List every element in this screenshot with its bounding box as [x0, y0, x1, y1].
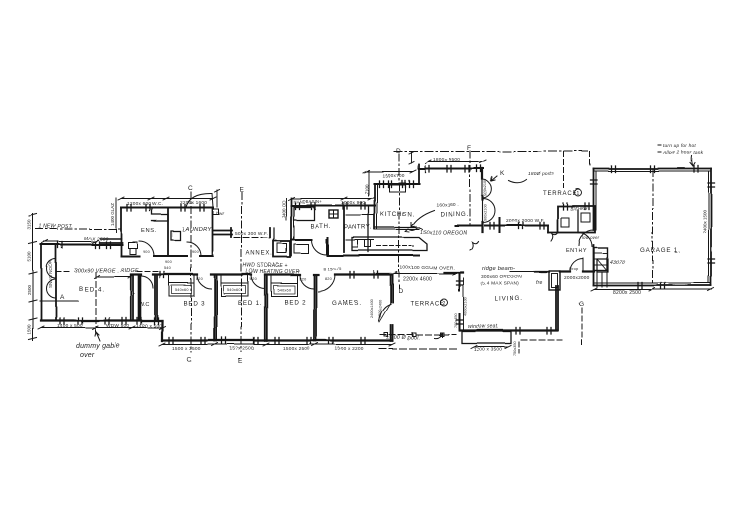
svg-text:540x60: 540x60	[227, 288, 241, 292]
svg-text:D: D	[398, 288, 403, 295]
svg-text:1 NEW POST.: 1 NEW POST.	[39, 224, 73, 230]
svg-text:ridge beam-: ridge beam-	[482, 266, 515, 272]
svg-text:fre: fre	[536, 280, 542, 286]
svg-text:900: 900	[143, 250, 150, 254]
svg-text:(5.4 MAX SPAN): (5.4 MAX SPAN)	[481, 281, 520, 287]
svg-text:LOW HEATING OVER: LOW HEATING OVER	[246, 269, 300, 275]
svg-text:2: 2	[443, 301, 446, 307]
svg-text:1500x 2500: 1500x 2500	[283, 346, 310, 352]
svg-text:2000x2000: 2000x2000	[564, 275, 590, 281]
svg-text:540x60: 540x60	[175, 288, 189, 292]
svg-text:D: D	[396, 148, 401, 155]
svg-text:1500x700: 1500x700	[382, 173, 405, 179]
svg-text:GARAGE 1.: GARAGE 1.	[640, 247, 681, 254]
svg-text:BATHRM: BATHRM	[570, 206, 588, 211]
svg-text:1200 x 3500: 1200 x 3500	[474, 347, 503, 353]
svg-text:1200x 600: 1200x 600	[127, 201, 151, 207]
svg-text:700x450: 700x450	[454, 313, 458, 328]
svg-text:2500: 2500	[27, 284, 32, 295]
svg-text:B 150x75: B 150x75	[323, 266, 342, 271]
svg-text:2100: 2100	[364, 183, 369, 194]
svg-text:4000x2100: 4000x2100	[464, 297, 468, 316]
svg-text:1800x 5500: 1800x 5500	[433, 157, 460, 163]
svg-text:1500: 1500	[27, 324, 32, 335]
svg-text:WDW 500: WDW 500	[106, 323, 129, 329]
svg-text:K: K	[500, 170, 505, 177]
svg-text:ENS.: ENS.	[141, 228, 157, 234]
svg-text:BED 2: BED 2	[284, 299, 306, 306]
svg-text:1400 x 500: 1400 x 500	[57, 323, 83, 329]
svg-text:900: 900	[192, 250, 199, 254]
svg-text:540x60: 540x60	[277, 288, 291, 292]
svg-text:2400x 1500: 2400x 1500	[702, 209, 707, 233]
svg-text:1000x 900: 1000x 900	[341, 200, 365, 206]
svg-text:BED 3: BED 3	[183, 300, 205, 307]
svg-text:over: over	[80, 352, 95, 359]
svg-text:1400 GLAZ: 1400 GLAZ	[110, 203, 115, 226]
svg-text:820: 820	[250, 277, 257, 281]
svg-text:BED 4.: BED 4.	[79, 286, 105, 293]
svg-text:G: G	[579, 301, 584, 308]
svg-text:1400 x 500: 1400 x 500	[136, 323, 162, 329]
svg-text:900x2100: 900x2100	[484, 204, 488, 221]
svg-text:BATH.: BATH.	[310, 224, 331, 230]
svg-text:540: 540	[164, 266, 171, 270]
svg-text:W.C: W.C	[139, 302, 149, 308]
svg-text:low over: low over	[582, 235, 600, 240]
svg-text:A: A	[60, 294, 65, 301]
svg-text:820: 820	[196, 277, 203, 281]
svg-text:C: C	[188, 185, 193, 192]
svg-text:43070: 43070	[610, 260, 625, 266]
svg-text:MAX 2500: MAX 2500	[84, 236, 108, 242]
svg-text:E: E	[238, 358, 243, 365]
svg-text:2000x 2000 W.F.: 2000x 2000 W.F.	[506, 218, 545, 224]
svg-text:LIVING.: LIVING.	[495, 296, 524, 303]
svg-text:500x 300 W.F.: 500x 300 W.F.	[235, 231, 268, 237]
svg-text:W.C.: W.C.	[152, 201, 163, 207]
svg-text:1400 OD: 1400 OD	[281, 199, 286, 218]
svg-text:TERRACE: TERRACE	[543, 191, 577, 197]
svg-text:Allow 2 hour tank: Allow 2 hour tank	[662, 150, 704, 156]
svg-text:1500 x 2200: 1500 x 2200	[335, 346, 364, 352]
svg-text:C: C	[187, 357, 192, 364]
svg-text:1: 1	[577, 191, 580, 197]
svg-text:820: 820	[325, 277, 332, 281]
svg-text:160x160 .: 160x160 .	[436, 202, 459, 208]
svg-text:DINING.: DINING.	[440, 211, 469, 218]
svg-text:150x110 OREGON: 150x110 OREGON	[420, 230, 467, 236]
svg-text:± 200 Ø pool.: ± 200 Ø pool.	[386, 335, 420, 341]
svg-text:15?x 2500: 15?x 2500	[230, 346, 254, 352]
svg-text:dummy gable: dummy gable	[76, 343, 120, 350]
svg-text:2400x1400: 2400x1400	[370, 299, 374, 318]
svg-text:1500x2400: 1500x2400	[378, 299, 382, 318]
svg-text:300x90 VERGE . RIDGE: 300x90 VERGE . RIDGE	[74, 268, 139, 274]
svg-text:SNUG NOOK: SNUG NOOK	[48, 260, 53, 288]
svg-text:BED 1.: BED 1.	[238, 300, 262, 307]
svg-text:E: E	[239, 186, 244, 193]
svg-text:KITCHEN.: KITCHEN.	[380, 211, 414, 218]
svg-text:300x60 OREGON: 300x60 OREGON	[481, 274, 522, 280]
svg-text:900: 900	[165, 260, 172, 264]
svg-text:8200x 2500: 8200x 2500	[613, 290, 641, 296]
svg-text:3150: 3150	[27, 219, 32, 230]
svg-text:F: F	[467, 145, 471, 152]
svg-text:PANTRY.: PANTRY.	[344, 225, 372, 231]
svg-text:900x2100: 900x2100	[484, 179, 488, 196]
svg-text:hwr: hwr	[216, 211, 225, 217]
svg-text:750x350: 750x350	[513, 341, 517, 356]
svg-text:5100: 5100	[27, 251, 32, 262]
svg-text:2200x 4600: 2200x 4600	[403, 277, 432, 283]
svg-text:Drop: Drop	[569, 266, 579, 271]
svg-text:ANNEX.: ANNEX.	[246, 251, 273, 257]
svg-text:1500 x 2500: 1500 x 2500	[172, 346, 201, 352]
svg-text:turn up for hot: turn up for hot	[663, 143, 696, 149]
svg-text:820: 820	[299, 277, 306, 281]
svg-text:GAMES.: GAMES.	[332, 300, 362, 307]
svg-text:180Ø posts: 180Ø posts	[528, 171, 555, 177]
svg-text:HANDBASIN+: HANDBASIN+	[293, 199, 322, 204]
svg-text:2200x 1600: 2200x 1600	[180, 200, 207, 206]
svg-text:100x100 GGUM OVER.: 100x100 GGUM OVER.	[400, 265, 455, 271]
svg-text:TERRACE: TERRACE	[410, 301, 444, 307]
svg-text:ENTRY: ENTRY	[566, 248, 587, 254]
svg-text:window seat.: window seat.	[468, 324, 499, 330]
svg-text:LAUNDRY: LAUNDRY	[182, 227, 212, 233]
